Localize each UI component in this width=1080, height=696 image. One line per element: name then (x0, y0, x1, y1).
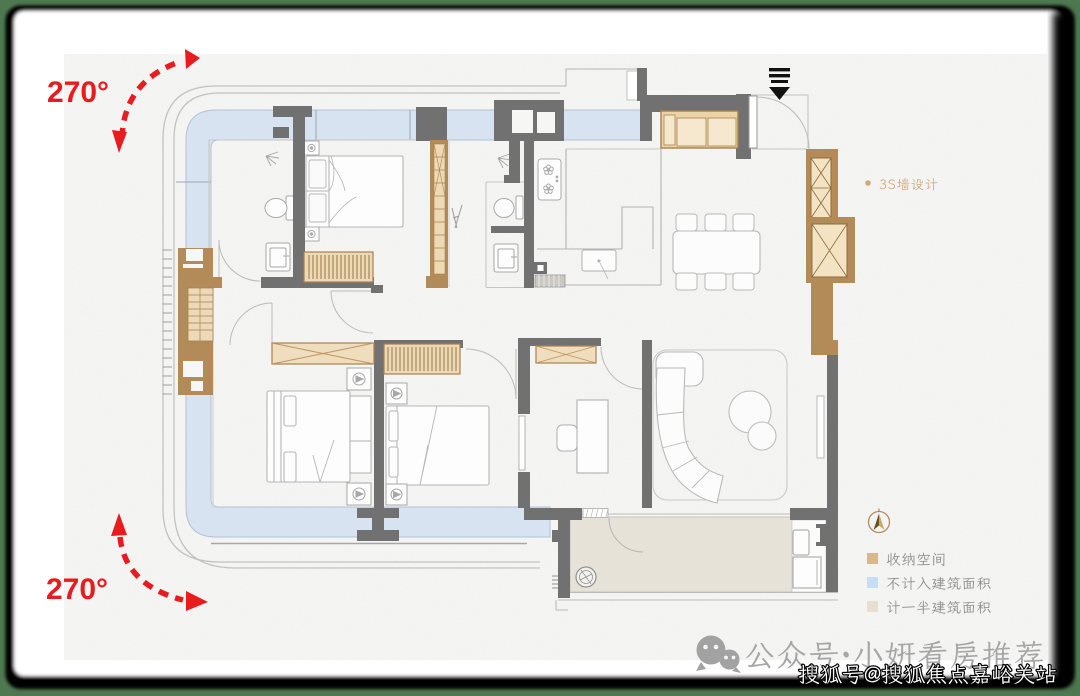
svg-text:270°: 270° (47, 76, 109, 109)
svg-text:270°: 270° (46, 573, 108, 606)
